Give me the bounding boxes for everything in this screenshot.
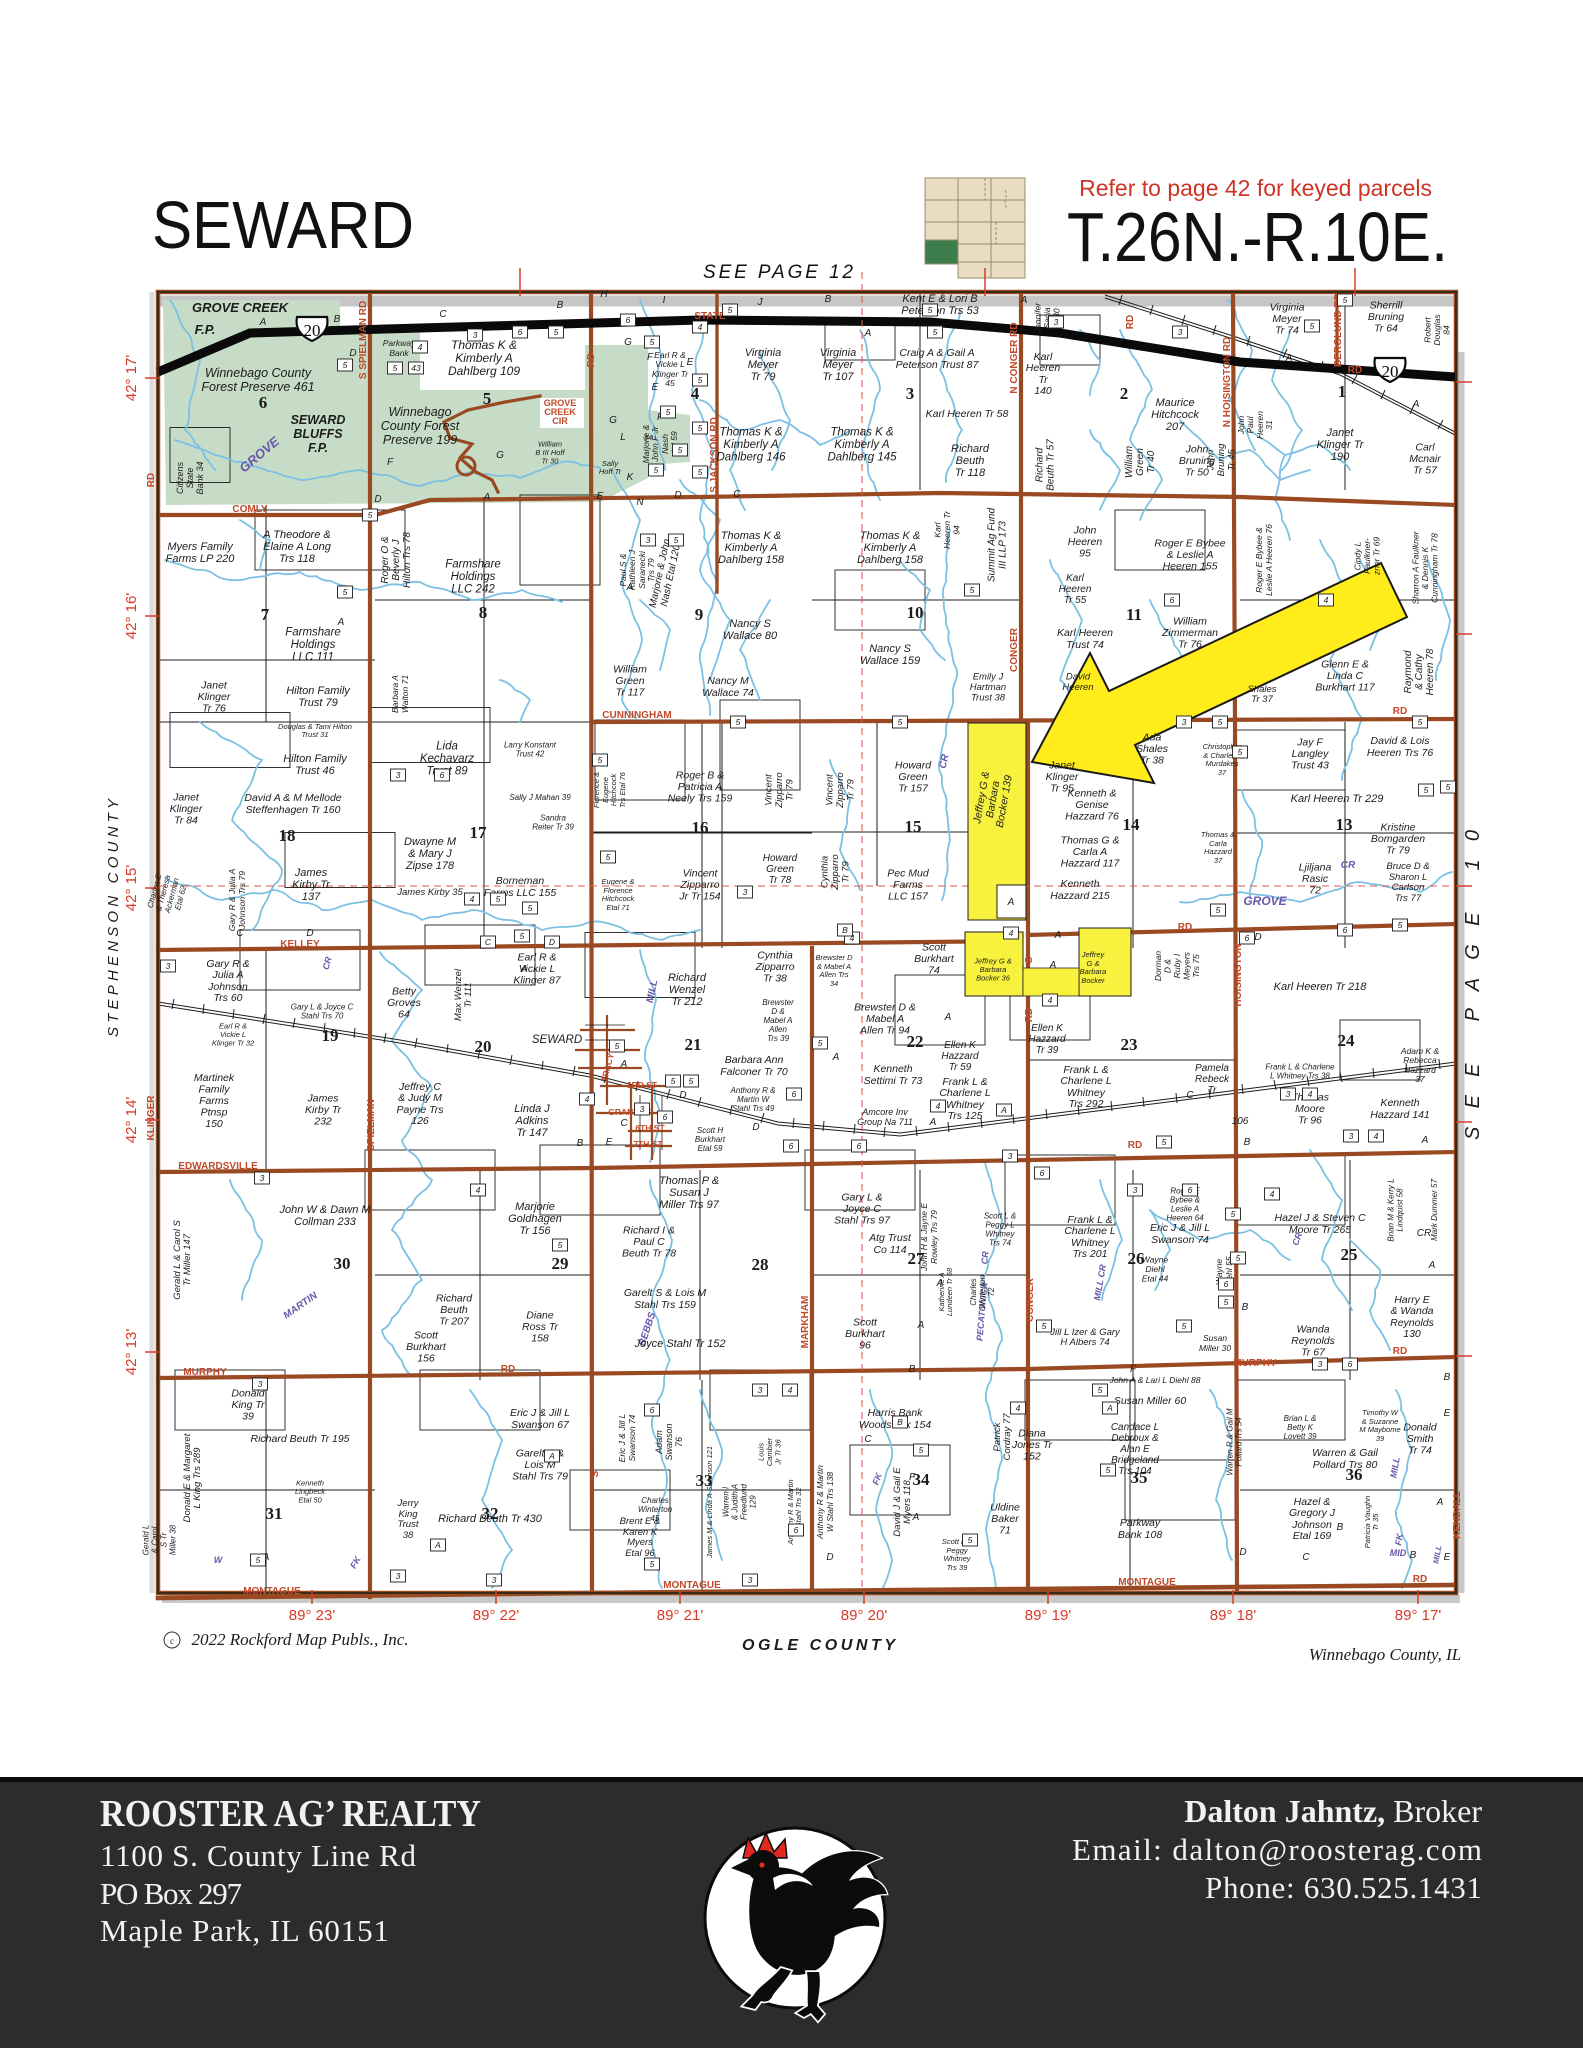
- svg-text:Kent E & Lori BPeterson Trs 53: Kent E & Lori BPeterson Trs 53: [901, 293, 979, 317]
- svg-text:Thomas K &Kimberly ADahlberg 1: Thomas K &Kimberly ADahlberg 158: [857, 530, 924, 566]
- svg-text:18: 18: [279, 826, 296, 845]
- svg-text:STEPHENSON COUNTY: STEPHENSON COUNTY: [105, 798, 122, 1037]
- svg-text:James Kirby 35: James Kirby 35: [396, 887, 463, 898]
- svg-text:4: 4: [1270, 1189, 1275, 1199]
- svg-text:CONGER: CONGER: [1009, 627, 1020, 672]
- svg-text:VincentZipparroJr Tr 154: VincentZipparroJr Tr 154: [678, 868, 720, 903]
- svg-text:A: A: [1020, 295, 1028, 306]
- svg-text:5: 5: [698, 423, 703, 433]
- svg-text:WilliamGreenTr 117: WilliamGreenTr 117: [613, 664, 647, 699]
- svg-text:A: A: [337, 617, 345, 628]
- svg-text:G: G: [624, 337, 632, 348]
- svg-text:E: E: [652, 382, 659, 393]
- svg-text:3RD ST: 3RD ST: [627, 1080, 658, 1090]
- svg-text:D: D: [679, 1090, 686, 1101]
- svg-text:6: 6: [1245, 933, 1250, 943]
- svg-text:A: A: [929, 1117, 937, 1128]
- svg-text:B: B: [334, 314, 341, 325]
- svg-text:RichardWenzelTr 212: RichardWenzelTr 212: [668, 972, 707, 1008]
- svg-text:C: C: [1302, 1552, 1310, 1563]
- svg-text:23: 23: [1121, 1035, 1138, 1054]
- svg-text:B: B: [909, 1364, 916, 1375]
- svg-text:4: 4: [418, 342, 423, 352]
- svg-text:Warren R & Gail MPollard Trs 5: Warren R & Gail MPollard Trs 54: [1226, 1408, 1244, 1475]
- svg-text:Katherine ALundeen Tr 68: Katherine ALundeen Tr 68: [937, 1267, 954, 1316]
- svg-text:3: 3: [396, 770, 401, 780]
- svg-text:3: 3: [1286, 1089, 1291, 1099]
- svg-text:Atg TrustCo 114: Atg TrustCo 114: [868, 1232, 912, 1256]
- svg-text:Joyce Stahl Tr 152: Joyce Stahl Tr 152: [634, 1338, 726, 1350]
- svg-text:Mark Dummer 57: Mark Dummer 57: [1430, 1179, 1439, 1241]
- svg-text:F: F: [387, 457, 394, 468]
- svg-text:Phone: 630.525.1431: Phone: 630.525.1431: [1205, 1870, 1482, 1905]
- svg-text:5: 5: [368, 510, 373, 520]
- svg-text:John H & Jayne ERowley Trs 79: John H & Jayne ERowley Trs 79: [919, 1203, 939, 1272]
- svg-text:6: 6: [857, 1141, 862, 1151]
- svg-text:5: 5: [256, 1555, 261, 1565]
- svg-text:RD: RD: [501, 1364, 515, 1375]
- svg-text:5: 5: [678, 445, 683, 455]
- svg-text:3: 3: [473, 330, 478, 340]
- svg-text:6: 6: [1170, 595, 1175, 605]
- svg-text:3: 3: [1054, 317, 1059, 327]
- svg-text:A: A: [548, 1451, 555, 1461]
- svg-text:James M & Linda A Swanson 121: James M & Linda A Swanson 121: [705, 1446, 714, 1559]
- svg-text:5: 5: [558, 1240, 563, 1250]
- svg-text:D: D: [374, 494, 381, 505]
- svg-text:5: 5: [598, 755, 603, 765]
- svg-text:D: D: [826, 1552, 833, 1563]
- svg-text:Craig A & Gail APeterson Trust: Craig A & Gail APeterson Trust 87: [896, 347, 980, 371]
- svg-text:3: 3: [1349, 1131, 1354, 1141]
- svg-text:34: 34: [913, 1470, 931, 1489]
- svg-text:4: 4: [936, 1101, 941, 1111]
- svg-text:G: G: [609, 415, 617, 426]
- svg-text:3: 3: [396, 1571, 401, 1581]
- svg-text:C: C: [733, 489, 741, 500]
- svg-text:E: E: [1444, 1408, 1451, 1419]
- svg-text:3: 3: [1318, 1359, 1323, 1369]
- svg-text:5: 5: [1231, 1209, 1236, 1219]
- svg-text:6: 6: [794, 1525, 799, 1535]
- svg-text:John A & Lari L Diehl 88: John A & Lari L Diehl 88: [1109, 1375, 1201, 1385]
- svg-text:E: E: [597, 491, 604, 502]
- svg-text:I: I: [663, 295, 666, 306]
- svg-text:4: 4: [1048, 995, 1053, 1005]
- svg-text:Amcore InvGroup Na 711: Amcore InvGroup Na 711: [857, 1107, 913, 1127]
- svg-text:20: 20: [304, 321, 321, 340]
- svg-text:A: A: [1421, 1135, 1429, 1146]
- svg-text:F: F: [647, 352, 654, 363]
- svg-text:3: 3: [1178, 327, 1183, 337]
- svg-text:5: 5: [1042, 1321, 1047, 1331]
- svg-text:5: 5: [1236, 1253, 1241, 1263]
- svg-text:4: 4: [691, 384, 700, 403]
- svg-text:4: 4: [1308, 1089, 1313, 1099]
- svg-text:A: A: [1285, 353, 1293, 364]
- svg-text:Florence &EugeneHitchcockTrs E: Florence &EugeneHitchcockTrs Etal 76: [592, 771, 627, 808]
- svg-text:RD: RD: [1393, 706, 1407, 717]
- svg-text:Garelt S & Lois MStahl Trs 159: Garelt S & Lois MStahl Trs 159: [624, 1287, 707, 1311]
- svg-text:F: F: [1130, 1364, 1137, 1375]
- svg-text:MARKHAM: MARKHAM: [800, 1296, 811, 1349]
- svg-text:Hazel &Gregory JJohnsonEtal 16: Hazel &Gregory JJohnsonEtal 169: [1289, 1496, 1336, 1542]
- svg-text:Brian L &Betty KLovett 39: Brian L &Betty KLovett 39: [1284, 1414, 1317, 1441]
- svg-text:B: B: [1242, 1302, 1249, 1313]
- svg-text:STATE: STATE: [694, 311, 726, 322]
- svg-text:5: 5: [483, 389, 492, 408]
- svg-text:RD: RD: [1348, 365, 1362, 376]
- svg-text:B: B: [577, 1138, 584, 1149]
- svg-text:GROVE: GROVE: [1243, 894, 1287, 908]
- svg-text:5: 5: [698, 467, 703, 477]
- svg-text:A: A: [259, 317, 267, 328]
- svg-text:5: 5: [1418, 717, 1423, 727]
- svg-text:T.26N.-R.10E.: T.26N.-R.10E.: [1067, 198, 1448, 276]
- svg-text:5: 5: [1238, 747, 1243, 757]
- svg-text:A: A: [1049, 960, 1057, 971]
- svg-text:CUNNINGHAM: CUNNINGHAM: [602, 710, 671, 721]
- svg-text:31: 31: [266, 1504, 283, 1523]
- svg-text:6: 6: [440, 770, 445, 780]
- svg-text:MONTAGUE: MONTAGUE: [243, 1586, 301, 1597]
- svg-text:A: A: [864, 328, 872, 339]
- svg-text:6: 6: [1040, 1168, 1045, 1178]
- svg-text:15: 15: [905, 817, 922, 836]
- svg-text:D: D: [674, 490, 681, 501]
- svg-text:WilliamGreenTr 40: WilliamGreenTr 40: [1124, 446, 1157, 478]
- svg-text:KELLEY: KELLEY: [280, 939, 320, 950]
- svg-text:3: 3: [758, 1385, 763, 1395]
- svg-text:SEE PAGE 12: SEE PAGE 12: [703, 262, 853, 283]
- svg-text:B: B: [1244, 1137, 1251, 1148]
- svg-text:5: 5: [1343, 295, 1348, 305]
- svg-text:29: 29: [552, 1254, 569, 1273]
- svg-text:FarmshareHoldingsLLC 111: FarmshareHoldingsLLC 111: [285, 627, 341, 664]
- svg-text:E: E: [606, 1137, 613, 1148]
- svg-text:Thomas K &Kimberly ADahlberg 1: Thomas K &Kimberly ADahlberg 158: [718, 530, 785, 566]
- svg-text:4: 4: [585, 1094, 590, 1104]
- svg-text:5: 5: [933, 327, 938, 337]
- svg-text:Winnebago CountyForest Preserv: Winnebago CountyForest Preserve 461: [201, 366, 314, 394]
- svg-text:S: S: [590, 1470, 601, 1477]
- svg-text:Warren & GailPollard Trs 80: Warren & GailPollard Trs 80: [1312, 1447, 1378, 1471]
- svg-text:7TH ST: 7TH ST: [633, 1139, 663, 1149]
- svg-text:89° 17': 89° 17': [1395, 1607, 1442, 1624]
- svg-text:B: B: [825, 294, 832, 305]
- svg-text:2022 Rockford Map Publs., Inc.: 2022 Rockford Map Publs., Inc.: [191, 1630, 408, 1649]
- svg-text:Dalton Jahntz, Broker: Dalton Jahntz, Broker: [1184, 1793, 1482, 1829]
- svg-text:KLINGER: KLINGER: [146, 1095, 157, 1141]
- svg-text:6: 6: [1348, 1359, 1353, 1369]
- svg-text:Barbara AWalton 71: Barbara AWalton 71: [390, 675, 410, 713]
- svg-text:3: 3: [1133, 1185, 1138, 1195]
- svg-text:Dwayne M& Mary JZipse 178: Dwayne M& Mary JZipse 178: [404, 836, 457, 872]
- svg-text:6TH ST: 6TH ST: [635, 1123, 665, 1133]
- svg-text:OGLE COUNTY: OGLE COUNTY: [742, 1637, 896, 1654]
- svg-text:WinnebagoCounty ForestPreserve: WinnebagoCounty ForestPreserve 199: [381, 405, 460, 447]
- svg-text:RD: RD: [1393, 1346, 1407, 1357]
- svg-text:9: 9: [695, 605, 704, 624]
- svg-text:A: A: [520, 964, 528, 975]
- svg-text:89° 23': 89° 23': [289, 1607, 336, 1624]
- svg-text:A: A: [1412, 399, 1420, 410]
- svg-text:5: 5: [970, 585, 975, 595]
- svg-text:B: B: [1444, 1372, 1451, 1383]
- svg-text:RD: RD: [586, 353, 597, 367]
- svg-text:106: 106: [1232, 1116, 1249, 1127]
- svg-text:89° 18': 89° 18': [1210, 1607, 1257, 1624]
- svg-text:3: 3: [492, 1575, 497, 1585]
- svg-text:5: 5: [528, 903, 533, 913]
- svg-text:N CONGER RD: N CONGER RD: [1009, 322, 1020, 393]
- svg-text:B: B: [842, 925, 848, 935]
- svg-text:H: H: [600, 289, 608, 300]
- svg-text:5: 5: [666, 407, 671, 417]
- svg-text:3: 3: [260, 1173, 265, 1183]
- svg-text:89° 19': 89° 19': [1025, 1607, 1072, 1624]
- svg-text:1100 S. County Line Rd: 1100 S. County Line Rd: [100, 1838, 417, 1873]
- svg-text:5: 5: [1424, 785, 1429, 795]
- svg-text:PO Box 297: PO Box 297: [100, 1876, 242, 1911]
- svg-text:JanetKlingerTr 76: JanetKlingerTr 76: [198, 680, 231, 715]
- svg-text:RD: RD: [1024, 1008, 1035, 1022]
- svg-text:3: 3: [906, 384, 915, 403]
- svg-text:5: 5: [728, 305, 733, 315]
- svg-text:Karl Heeren Tr 58: Karl Heeren Tr 58: [926, 408, 1009, 420]
- svg-text:5: 5: [689, 1076, 694, 1086]
- svg-text:42° 14': 42° 14': [123, 1097, 140, 1144]
- svg-text:Linda JAdkinsTr 147: Linda JAdkinsTr 147: [514, 1103, 550, 1139]
- svg-text:CR: CR: [1341, 860, 1356, 871]
- svg-text:Richard Beuth Tr 430: Richard Beuth Tr 430: [438, 1513, 543, 1525]
- svg-text:14: 14: [1123, 815, 1141, 834]
- svg-text:D: D: [349, 348, 356, 359]
- svg-text:JeffreyG &BarbaraBocker: JeffreyG &BarbaraBocker: [1080, 950, 1107, 985]
- svg-text:4: 4: [1016, 1403, 1021, 1413]
- svg-text:KENDALL: KENDALL: [1452, 1491, 1463, 1539]
- svg-text:Susan Miller 60: Susan Miller 60: [1114, 1395, 1187, 1407]
- svg-text:3: 3: [748, 1575, 753, 1585]
- svg-text:4: 4: [1374, 1131, 1379, 1141]
- svg-text:4: 4: [1009, 928, 1014, 938]
- svg-text:4: 4: [476, 1185, 481, 1195]
- svg-text:S SPIELMAN RD: S SPIELMAN RD: [358, 301, 369, 379]
- svg-text:5: 5: [343, 587, 348, 597]
- svg-text:c: c: [170, 1636, 174, 1646]
- svg-text:5: 5: [919, 1445, 924, 1455]
- svg-text:A: A: [1007, 897, 1015, 908]
- svg-text:KennethLingbeckEtal 50: KennethLingbeckEtal 50: [295, 1479, 326, 1505]
- svg-text:24: 24: [1338, 1031, 1356, 1050]
- svg-text:4: 4: [470, 894, 475, 904]
- svg-text:MURPHY: MURPHY: [1233, 1358, 1277, 1369]
- svg-text:3: 3: [166, 961, 171, 971]
- svg-text:D: D: [1239, 1547, 1246, 1558]
- svg-text:C: C: [620, 1118, 628, 1129]
- svg-text:ROOSTER AG’ REALTY: ROOSTER AG’ REALTY: [100, 1793, 481, 1835]
- svg-text:5: 5: [606, 852, 611, 862]
- svg-text:A: A: [1436, 1497, 1444, 1508]
- svg-text:21: 21: [685, 1035, 702, 1054]
- svg-text:6: 6: [1188, 1185, 1193, 1195]
- svg-text:Eric J & Jill LSwanson 67: Eric J & Jill LSwanson 67: [510, 1407, 570, 1431]
- svg-text:Jeffrey G &BarbaraBocker 36: Jeffrey G &BarbaraBocker 36: [973, 957, 1012, 983]
- svg-text:E: E: [687, 357, 694, 368]
- svg-text:RichardBeuthTr 207: RichardBeuthTr 207: [436, 1293, 473, 1328]
- svg-text:5: 5: [818, 1038, 823, 1048]
- svg-text:11: 11: [1126, 605, 1142, 624]
- svg-text:25: 25: [1341, 1245, 1358, 1264]
- svg-text:6: 6: [626, 315, 631, 325]
- svg-text:RD: RD: [1128, 1140, 1142, 1151]
- svg-text:42° 17': 42° 17': [123, 355, 140, 402]
- svg-text:5: 5: [1446, 782, 1451, 792]
- svg-text:B: B: [1410, 1550, 1417, 1561]
- svg-text:5: 5: [393, 363, 398, 373]
- svg-text:4: 4: [788, 1385, 793, 1395]
- svg-text:5: 5: [654, 465, 659, 475]
- svg-text:ParkwayBank 108: ParkwayBank 108: [1118, 1517, 1163, 1541]
- svg-text:Richard Beuth Tr 195: Richard Beuth Tr 195: [250, 1433, 349, 1445]
- svg-text:Cindy LFaulkner-zner Tr 69: Cindy LFaulkner-zner Tr 69: [1353, 537, 1382, 576]
- svg-text:Thomas K &Kimberly ADahlberg 1: Thomas K &Kimberly ADahlberg 109: [448, 338, 520, 378]
- svg-text:5: 5: [1182, 1321, 1187, 1331]
- svg-text:6: 6: [259, 393, 268, 412]
- svg-text:A: A: [912, 1512, 920, 1523]
- svg-text:5: 5: [1218, 717, 1223, 727]
- svg-text:42° 16': 42° 16': [123, 593, 140, 640]
- svg-text:3: 3: [1182, 717, 1187, 727]
- svg-text:F.P.: F.P.: [195, 322, 216, 337]
- svg-text:5: 5: [968, 1535, 973, 1545]
- svg-text:E: E: [1444, 1552, 1451, 1563]
- svg-text:Barbara AnnFalconer Tr 70: Barbara AnnFalconer Tr 70: [720, 1054, 788, 1078]
- svg-text:G: G: [496, 450, 504, 461]
- svg-text:6: 6: [1224, 1279, 1229, 1289]
- svg-text:5: 5: [928, 305, 933, 315]
- svg-text:DavidHeeren: DavidHeeren: [1062, 672, 1093, 694]
- svg-text:5: 5: [671, 1076, 676, 1086]
- svg-text:SPIELMAN: SPIELMAN: [366, 1099, 377, 1151]
- svg-text:6: 6: [518, 327, 523, 337]
- svg-text:4: 4: [1324, 595, 1329, 605]
- svg-text:SEWARD: SEWARD: [532, 1034, 582, 1046]
- svg-text:5: 5: [674, 535, 679, 545]
- svg-text:A: A: [620, 1059, 628, 1070]
- svg-text:C: C: [236, 928, 244, 939]
- svg-text:28: 28: [752, 1255, 769, 1274]
- svg-text:A: A: [1054, 930, 1062, 941]
- svg-text:Emily JHartmanTrust 38: Emily JHartmanTrust 38: [970, 672, 1006, 704]
- svg-text:3: 3: [743, 887, 748, 897]
- svg-text:5: 5: [736, 717, 741, 727]
- svg-text:CR: CR: [979, 1250, 990, 1264]
- svg-text:B: B: [897, 1417, 903, 1427]
- svg-text:3: 3: [640, 1104, 645, 1114]
- svg-text:Thomas K &Kimberly ADahlberg 1: Thomas K &Kimberly ADahlberg 146: [716, 427, 786, 464]
- svg-text:DormanD &Ruby IMeyersTrs 75: DormanD &Ruby IMeyersTrs 75: [1153, 951, 1201, 982]
- svg-text:David & LoisHeeren Trs 76: David & LoisHeeren Trs 76: [1367, 735, 1433, 759]
- svg-text:J: J: [757, 297, 764, 308]
- svg-text:89° 20': 89° 20': [841, 1607, 888, 1624]
- svg-text:ShalesTr 37: ShalesTr 37: [1247, 684, 1276, 705]
- svg-text:5: 5: [1098, 1385, 1103, 1395]
- svg-text:89° 21': 89° 21': [657, 1607, 704, 1624]
- svg-text:Eric J & Jill LSwanson 74: Eric J & Jill LSwanson 74: [1150, 1222, 1210, 1246]
- svg-text:5: 5: [698, 375, 703, 385]
- svg-text:43: 43: [411, 363, 421, 373]
- svg-text:42° 13': 42° 13': [123, 1329, 140, 1376]
- svg-text:B: B: [1337, 1522, 1344, 1533]
- svg-text:6: 6: [1343, 925, 1348, 935]
- svg-text:David A & M MellodeSteffenhage: David A & M MellodeSteffenhagen Tr 160: [244, 792, 341, 816]
- svg-text:A: A: [832, 1052, 840, 1063]
- svg-text:6: 6: [663, 1112, 668, 1122]
- svg-text:C: C: [485, 937, 492, 947]
- svg-text:A: A: [917, 1320, 925, 1331]
- svg-text:5: 5: [496, 894, 501, 904]
- svg-text:5: 5: [1162, 1137, 1167, 1147]
- svg-text:5: 5: [1224, 1297, 1229, 1307]
- svg-text:RD: RD: [1178, 922, 1192, 933]
- svg-text:5: 5: [1216, 905, 1221, 915]
- svg-text:CONGER: CONGER: [1025, 1277, 1036, 1322]
- svg-text:MONTAGUE: MONTAGUE: [663, 1580, 721, 1591]
- svg-text:A: A: [944, 1012, 952, 1023]
- svg-text:VirginiaMeyerTr 107: VirginiaMeyerTr 107: [820, 347, 857, 383]
- svg-text:2: 2: [1120, 384, 1129, 403]
- svg-text:S: S: [1024, 956, 1035, 963]
- svg-text:C: C: [864, 1434, 872, 1445]
- svg-text:F: F: [909, 1472, 916, 1483]
- svg-text:19: 19: [322, 1026, 339, 1045]
- svg-text:SEWARD: SEWARD: [152, 188, 414, 263]
- svg-text:Nancy SWallace 80: Nancy SWallace 80: [723, 618, 778, 642]
- svg-text:RD: RD: [1413, 1574, 1427, 1585]
- svg-text:5: 5: [343, 360, 348, 370]
- svg-text:B: B: [557, 300, 564, 311]
- svg-text:5: 5: [554, 327, 559, 337]
- svg-text:Anthony R &Martin WStahl Trs 4: Anthony R &Martin WStahl Trs 49: [730, 1086, 776, 1113]
- svg-text:MID: MID: [1390, 1548, 1407, 1558]
- svg-text:5: 5: [650, 337, 655, 347]
- svg-text:Thomas K &Kimberly ADahlberg 1: Thomas K &Kimberly ADahlberg 145: [827, 427, 897, 464]
- svg-text:6: 6: [789, 1141, 794, 1151]
- svg-text:WayneDiehlEtal 44: WayneDiehlEtal 44: [1142, 1255, 1169, 1284]
- svg-text:FarmshareHoldingsLLC 242: FarmshareHoldingsLLC 242: [445, 559, 501, 596]
- svg-text:Roger E Bybee &Leslie A Heeren: Roger E Bybee &Leslie A Heeren 76: [1254, 524, 1274, 596]
- svg-text:A: A: [434, 1540, 441, 1550]
- svg-text:Brent E &Karen KMyersEtal 96: Brent E &Karen KMyersEtal 96: [620, 1516, 661, 1559]
- svg-text:5: 5: [1398, 920, 1403, 930]
- svg-text:HOISINGTON: HOISINGTON: [1233, 943, 1244, 1006]
- svg-text:Email: dalton@roosterag.com: Email: dalton@roosterag.com: [1072, 1832, 1482, 1867]
- svg-text:Karl Heeren Tr 218: Karl Heeren Tr 218: [1274, 981, 1368, 993]
- svg-text:8: 8: [479, 603, 488, 622]
- svg-text:Karl Heeren Tr 229: Karl Heeren Tr 229: [1291, 793, 1384, 805]
- svg-text:A: A: [1000, 1105, 1007, 1115]
- svg-text:N: N: [636, 497, 644, 508]
- svg-text:4: 4: [698, 322, 703, 332]
- svg-text:30: 30: [334, 1254, 351, 1273]
- svg-text:Scott HBurkhartEtal 59: Scott HBurkhartEtal 59: [695, 1126, 726, 1153]
- svg-text:A: A: [936, 1278, 944, 1289]
- svg-text:10: 10: [907, 603, 924, 622]
- svg-text:Sally J Mahan 39: Sally J Mahan 39: [509, 793, 571, 802]
- svg-text:N HOISINGTON RD: N HOISINGTON RD: [1222, 337, 1233, 427]
- svg-text:MURPHY: MURPHY: [183, 1367, 227, 1378]
